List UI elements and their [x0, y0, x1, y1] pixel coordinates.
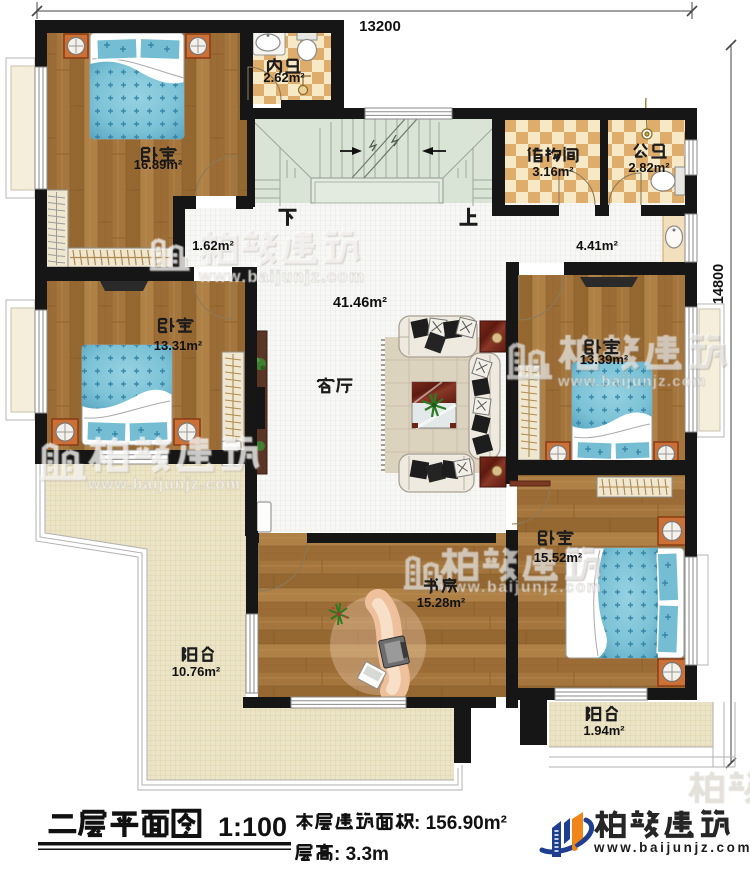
svg-text:2.82m²: 2.82m²	[628, 160, 670, 175]
svg-text:3.16m²: 3.16m²	[532, 164, 574, 179]
svg-text:: 156.90m²: : 156.90m²	[414, 813, 507, 834]
svg-text:13200: 13200	[359, 18, 401, 35]
svg-text:2.62m²: 2.62m²	[263, 70, 305, 85]
svg-text:www.baijunjz.com: www.baijunjz.com	[557, 373, 707, 390]
svg-text:16.89m²: 16.89m²	[134, 157, 183, 172]
svg-text:www.baijunjz.com: www.baijunjz.com	[87, 476, 241, 493]
svg-text:4.41m²: 4.41m²	[576, 238, 618, 253]
svg-text:www.baijunjz.com: www.baijunjz.com	[439, 579, 603, 596]
svg-text:14800: 14800	[711, 264, 727, 304]
svg-text:41.46m²: 41.46m²	[333, 295, 387, 311]
svg-text:www.baijunjz.com: www.baijunjz.com	[198, 268, 365, 286]
svg-text:www.baijunjz.com: www.baijunjz.com	[593, 840, 750, 855]
svg-text:10.76m²: 10.76m²	[172, 664, 221, 679]
svg-text:13.39m²: 13.39m²	[580, 352, 629, 367]
svg-text:1.94m²: 1.94m²	[583, 723, 625, 738]
svg-text:13.31m²: 13.31m²	[154, 338, 203, 353]
svg-text:15.28m²: 15.28m²	[417, 595, 466, 610]
svg-text:1.62m²: 1.62m²	[192, 238, 234, 253]
svg-text:15.52m²: 15.52m²	[534, 550, 583, 565]
svg-text:1:100: 1:100	[218, 812, 287, 842]
svg-text:: 3.3m: : 3.3m	[334, 844, 389, 865]
